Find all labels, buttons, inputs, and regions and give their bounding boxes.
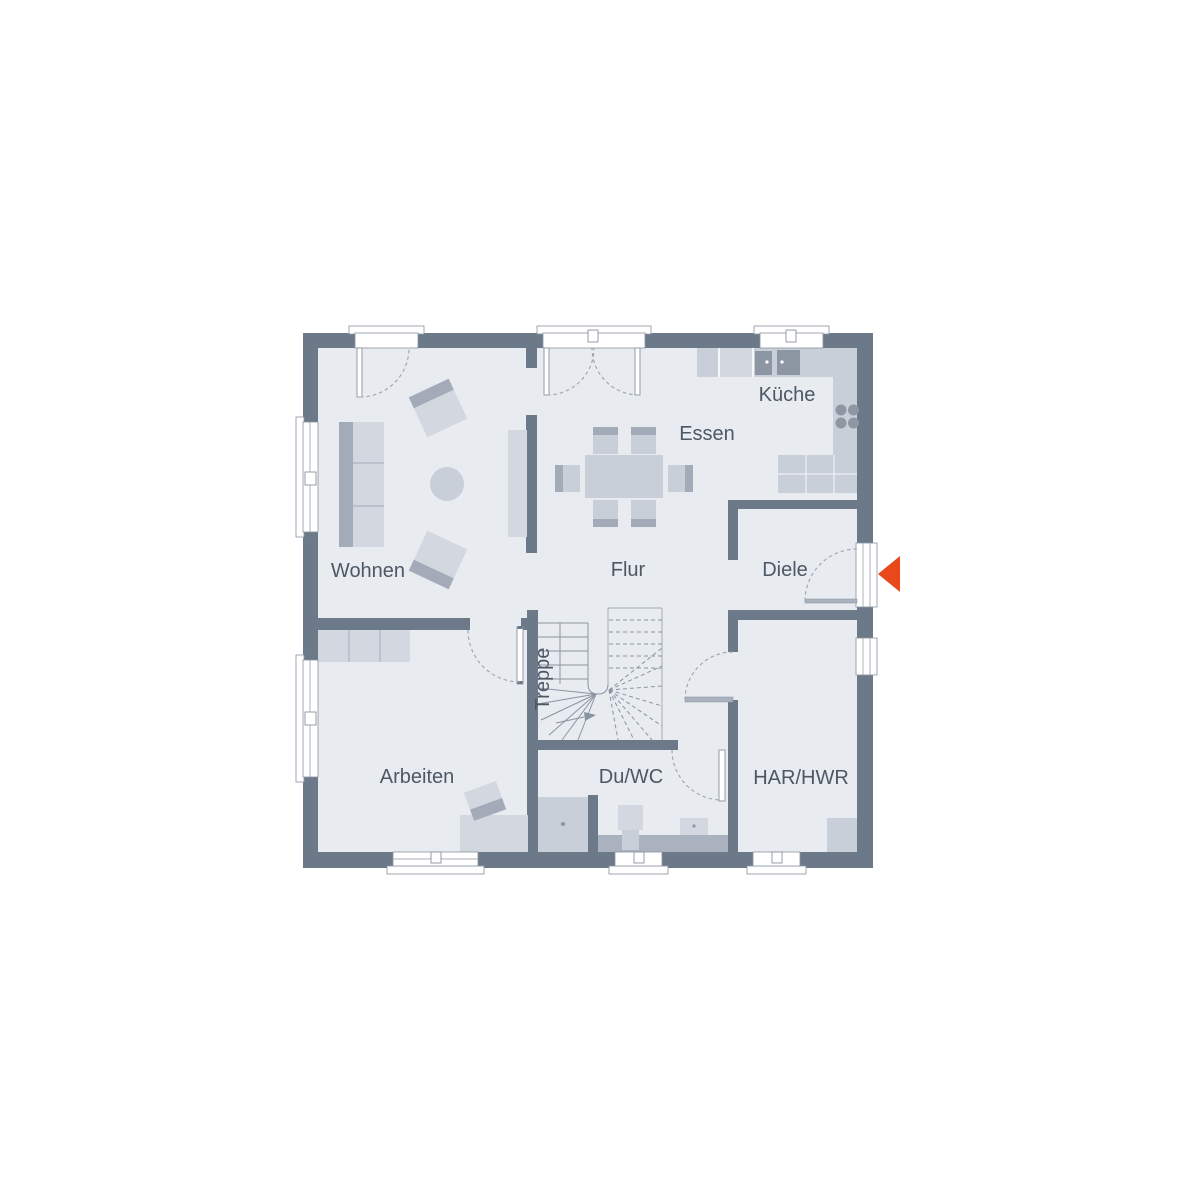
office-cabinet bbox=[318, 630, 410, 662]
coffee-table bbox=[430, 467, 464, 501]
room-label-arbeiten: Arbeiten bbox=[380, 766, 455, 788]
room-label-treppe: Treppe bbox=[532, 648, 554, 711]
wall-stair-left bbox=[527, 610, 538, 852]
room-label-flur: Flur bbox=[611, 559, 646, 581]
room-label-duwc: Du/WC bbox=[599, 766, 663, 788]
wall-partition-tv bbox=[526, 415, 537, 553]
wall-stair-bottom bbox=[527, 740, 678, 750]
sideboard bbox=[508, 430, 527, 537]
dining-table bbox=[585, 455, 663, 498]
window-wohnen-left bbox=[296, 417, 318, 537]
dining-chair bbox=[631, 500, 656, 527]
window-har-bottom bbox=[747, 852, 806, 874]
room-label-diele: Diele bbox=[762, 559, 808, 581]
kitchen-counter-top-light-section bbox=[719, 348, 753, 377]
kitchen-appliance-icon bbox=[777, 350, 800, 375]
wall-stub-top bbox=[526, 348, 537, 368]
window-duwc-bottom bbox=[609, 852, 668, 874]
dining-chair bbox=[555, 465, 580, 492]
wall-diele-bottom bbox=[728, 610, 857, 620]
kitchen-counter-right bbox=[833, 348, 857, 455]
window-kitchen-top bbox=[754, 326, 829, 348]
room-label-harhwr: HAR/HWR bbox=[753, 767, 849, 789]
window-arbeiten-left bbox=[296, 655, 318, 782]
kitchen-appliance-icon bbox=[755, 351, 772, 375]
wall-shower-stub bbox=[588, 795, 598, 852]
wall-diele-left bbox=[728, 500, 738, 560]
wall-har-left-lower bbox=[728, 700, 738, 852]
room-label-essen: Essen bbox=[679, 423, 735, 445]
dining-chair bbox=[593, 500, 618, 527]
wall-diele-top bbox=[728, 500, 857, 509]
washbasin-pedestal bbox=[622, 830, 639, 850]
window-arbeiten-bottom bbox=[387, 852, 484, 874]
dining-chair bbox=[668, 465, 693, 492]
floor-plan-drawing: Wohnen Essen Küche Flur Diele Treppe Arb… bbox=[0, 0, 1200, 1200]
utility-appliance bbox=[827, 818, 857, 852]
entrance-arrow-icon bbox=[878, 556, 900, 592]
sofa bbox=[339, 422, 384, 547]
desk bbox=[460, 815, 528, 852]
window-har-right bbox=[856, 638, 877, 675]
room-label-kueche: Küche bbox=[759, 384, 816, 406]
dining-chair bbox=[593, 427, 618, 454]
dining-chair bbox=[631, 427, 656, 454]
wall-har-left-upper bbox=[728, 620, 738, 652]
bath-counter-band bbox=[598, 835, 728, 852]
room-label-wohnen: Wohnen bbox=[331, 560, 405, 582]
floor-plan-page: Wohnen Essen Küche Flur Diele Treppe Arb… bbox=[0, 0, 1200, 1200]
wall-arbeiten-top bbox=[318, 618, 470, 630]
washbasin bbox=[618, 805, 643, 830]
